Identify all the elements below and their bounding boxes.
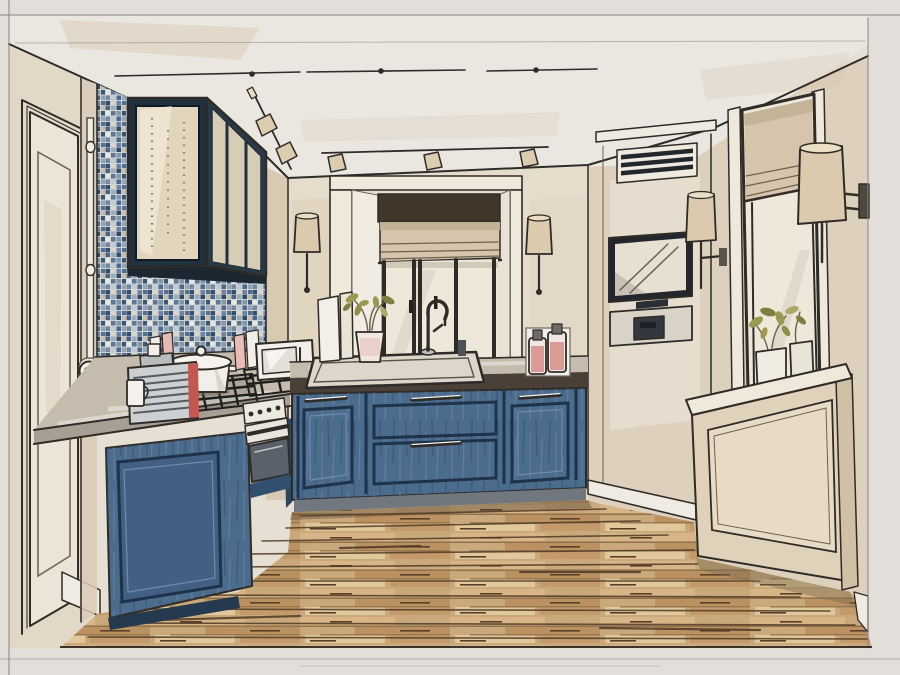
base-cabinets-center [290, 388, 592, 520]
conduit-joint [86, 142, 95, 153]
track-connector [378, 68, 384, 74]
spotlight-head [520, 149, 538, 167]
sconce-shade [798, 146, 846, 224]
oil-bottles [526, 324, 570, 376]
track-connector [533, 67, 539, 73]
track-connector [249, 71, 255, 77]
cookbook-pink [234, 334, 246, 370]
milk-jug [127, 380, 144, 406]
bottle-liquid [531, 346, 544, 372]
machine-red-panel [188, 363, 199, 418]
sconce-shade [686, 194, 716, 242]
cutting-board [318, 296, 340, 362]
window-head-band [378, 194, 500, 222]
sconce-mount [719, 248, 727, 266]
oven-knob [267, 408, 272, 413]
bottle-cap [552, 324, 562, 334]
kitchen-sketch [0, 0, 900, 675]
oven-knob [276, 406, 281, 411]
lid-knob [197, 347, 206, 356]
spotlight-head [424, 152, 442, 170]
oven-door-glass [249, 438, 290, 482]
oven-knob [258, 410, 263, 415]
soap-dispenser [458, 340, 466, 356]
spotlight-head [328, 154, 346, 172]
alcove-header-trim [330, 176, 522, 190]
alcove-trim-right [510, 190, 522, 372]
window-handle [409, 300, 413, 313]
bottle-cap [533, 330, 542, 340]
sketch-canvas [0, 0, 900, 675]
oven-knob [249, 412, 254, 417]
bottle-liquid [550, 342, 564, 370]
conduit-pipe [87, 118, 94, 362]
sconce-shade [294, 216, 320, 252]
conduit-joint [86, 265, 95, 276]
pot-handle [229, 366, 236, 371]
sconce-shade [526, 218, 552, 254]
espresso-cup [148, 344, 160, 356]
